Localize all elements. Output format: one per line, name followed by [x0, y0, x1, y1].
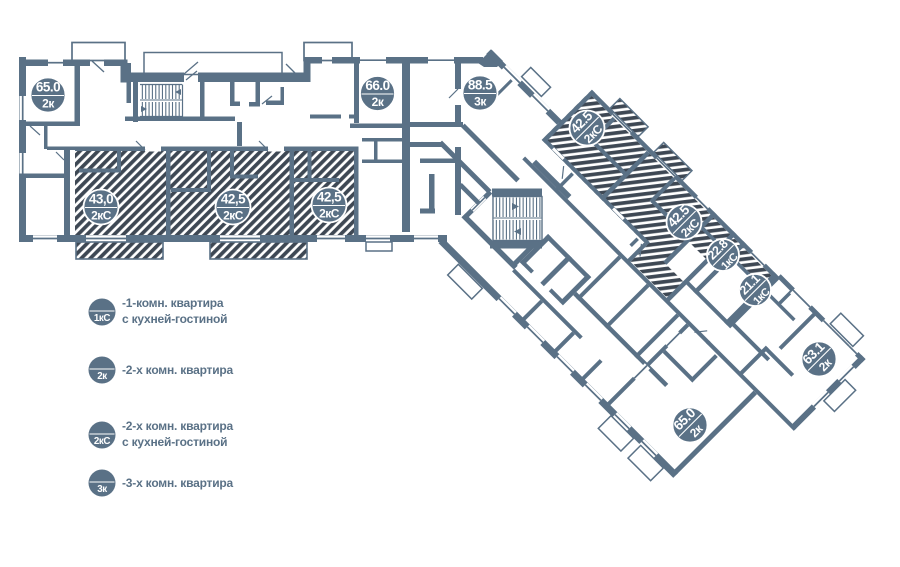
- svg-text:с кухней-гостиной: с кухней-гостиной: [122, 312, 227, 326]
- svg-text:2кС: 2кС: [91, 209, 112, 223]
- svg-text:2к: 2к: [97, 371, 107, 382]
- svg-text:-1-комн. квартира: -1-комн. квартира: [122, 296, 224, 310]
- svg-text:-2-х комн. квартира: -2-х комн. квартира: [122, 419, 234, 433]
- svg-text:-3-х комн. квартира: -3-х комн. квартира: [122, 476, 234, 490]
- svg-text:2кС: 2кС: [319, 207, 340, 221]
- svg-text:42,5: 42,5: [317, 190, 342, 205]
- svg-text:2к: 2к: [372, 95, 385, 109]
- svg-text:88.5: 88.5: [468, 78, 493, 93]
- svg-text:42,5: 42,5: [221, 192, 246, 207]
- svg-text:43,0: 43,0: [89, 192, 113, 207]
- svg-text:2к: 2к: [42, 97, 55, 111]
- svg-text:65.0: 65.0: [36, 80, 60, 95]
- svg-text:66.0: 66.0: [365, 78, 389, 93]
- svg-text:2кС: 2кС: [94, 436, 111, 447]
- svg-text:1кС: 1кС: [94, 313, 111, 324]
- svg-text:с кухней-гостиной: с кухней-гостиной: [122, 435, 227, 449]
- svg-text:-2-х комн. квартира: -2-х комн. квартира: [122, 363, 234, 377]
- svg-text:2кС: 2кС: [223, 209, 244, 223]
- svg-text:3к: 3к: [97, 484, 107, 495]
- svg-text:3к: 3к: [474, 95, 487, 109]
